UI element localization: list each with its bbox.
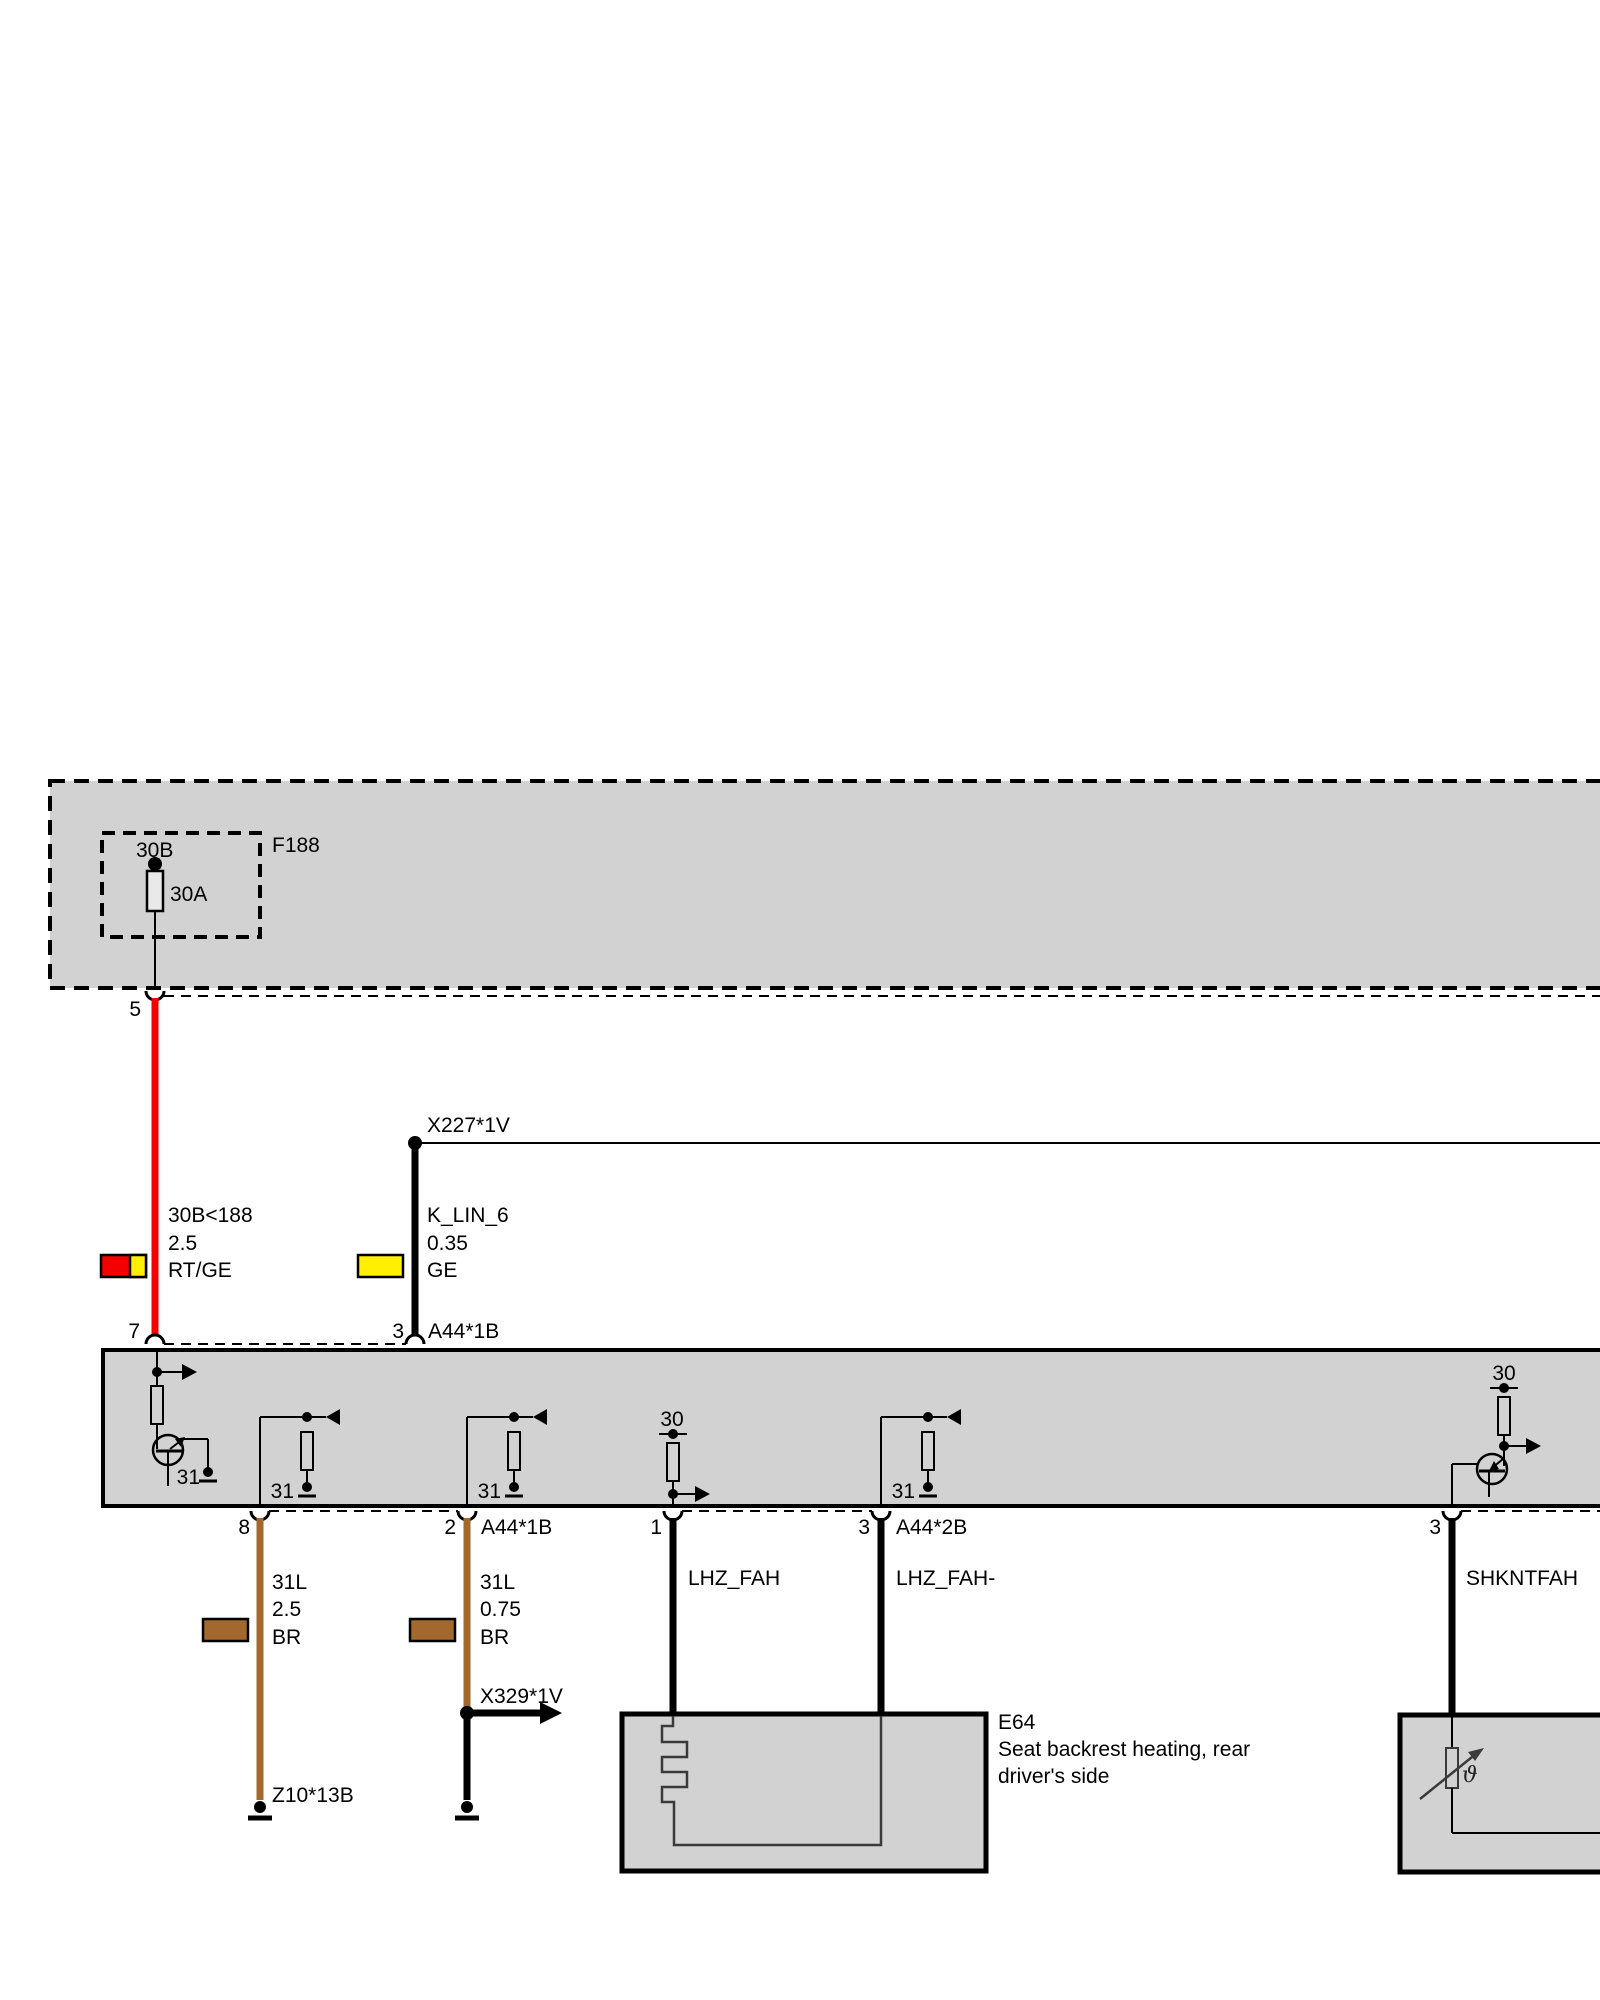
color-key-ge-icon <box>358 1255 403 1277</box>
x227-connector-label: X227*1V <box>427 1114 510 1137</box>
x329-label: X329*1V <box>480 1685 563 1708</box>
pin-3-top-label: 3 <box>392 1320 404 1343</box>
lhz-fah-label: LHZ_FAH <box>688 1567 780 1590</box>
gnd-light-gauge: 0.75 <box>480 1598 521 1621</box>
fuse-element <box>147 871 163 911</box>
pin-7-socket-icon <box>146 1335 164 1344</box>
wire-lhz-fah-minus: LHZ_FAH- <box>881 1518 995 1714</box>
pin-3b-label: 3 <box>1429 1516 1441 1539</box>
e64-heater-box: E64 Seat backrest heating, rear driver's… <box>622 1711 1250 1871</box>
wire-shkntfah: SHKNTFAH <box>1452 1518 1578 1715</box>
fuse-terminal-dot <box>148 857 162 871</box>
terminal-31-label: 31 <box>271 1480 294 1503</box>
color-key-yellow-part <box>130 1255 146 1277</box>
terminal-31-label: 31 <box>478 1480 501 1503</box>
a44-1b-bottom-label: A44*1B <box>481 1516 552 1539</box>
ground-point <box>455 1801 479 1818</box>
gnd-light-name: 31L <box>480 1571 515 1594</box>
color-key-br-icon <box>203 1619 248 1641</box>
wire-lhz-fah: LHZ_FAH <box>673 1518 780 1714</box>
ground-dot <box>461 1801 473 1813</box>
pin-2-label: 2 <box>444 1516 456 1539</box>
x329-node-dot <box>460 1706 474 1720</box>
gnd-heavy-gauge: 2.5 <box>272 1598 301 1621</box>
control-module-box: 7 3 A44*1B 31 <box>103 1320 1600 1539</box>
z10-label: Z10*13B <box>272 1784 354 1807</box>
wiring-diagram-page: F188 30B 30A 5 30B<188 2.5 RT/GE X227*1V… <box>0 0 1600 2000</box>
terminal-31-label: 31 <box>892 1480 915 1503</box>
shkntfah-label: SHKNTFAH <box>1466 1567 1578 1590</box>
supply-wire-gauge: 2.5 <box>168 1232 197 1255</box>
control-module-body <box>103 1350 1600 1506</box>
k-lin-wire-colorcode: GE <box>427 1259 457 1282</box>
junction-dot <box>509 1412 519 1422</box>
ground-dot <box>254 1801 266 1813</box>
a44-2b-label: A44*2B <box>896 1516 967 1539</box>
color-key-rt-ge-icon <box>101 1255 146 1277</box>
x227-node-dot <box>408 1136 422 1150</box>
pin-8-label: 8 <box>238 1516 250 1539</box>
k-lin-wire-gauge: 0.35 <box>427 1232 468 1255</box>
k-lin-wire-name: K_LIN_6 <box>427 1204 509 1227</box>
theta-symbol: ϑ <box>1462 1763 1478 1788</box>
pin-5-label: 5 <box>129 998 141 1021</box>
junction-dot <box>923 1412 933 1422</box>
terminal-31-label: 31 <box>177 1466 200 1489</box>
terminal-30-label: 30 <box>1492 1362 1515 1385</box>
module-bottom-pins: 8 2 A44*1B 1 3 A44*2B 3 <box>238 1511 1600 1539</box>
supply-wire-colorcode: RT/GE <box>168 1259 232 1282</box>
pin-3a-label: 3 <box>858 1516 870 1539</box>
gnd-heavy-colorcode: BR <box>272 1626 301 1649</box>
ground-point-z10 <box>248 1801 272 1818</box>
e64-name: E64 <box>998 1711 1036 1734</box>
gnd-heavy-name: 31L <box>272 1571 307 1594</box>
terminal-30-label: 30 <box>660 1408 683 1431</box>
e64-desc-line1: Seat backrest heating, rear <box>998 1738 1250 1761</box>
supply-wire-name: 30B<188 <box>168 1204 253 1227</box>
a44-1b-top-label: A44*1B <box>428 1320 499 1343</box>
sensor-body <box>1400 1715 1600 1872</box>
wire-31l-light: 31L 0.75 BR X329*1V <box>410 1518 563 1818</box>
gnd-light-colorcode: BR <box>480 1626 509 1649</box>
pin-3-top-socket-icon <box>406 1335 424 1344</box>
junction-dot <box>302 1412 312 1422</box>
fuse-carrier-body <box>50 781 1600 988</box>
wire-k-lin: X227*1V K_LIN_6 0.35 GE <box>358 1114 1600 1336</box>
wire-30b-supply: 30B<188 2.5 RT/GE <box>101 998 253 1336</box>
temp-sensor-box: ϑ <box>1400 1715 1600 1872</box>
fuse-box-name: F188 <box>272 834 320 857</box>
color-key-br-icon <box>410 1619 455 1641</box>
wiring-diagram: F188 30B 30A 5 30B<188 2.5 RT/GE X227*1V… <box>0 0 1600 2000</box>
pin-7-label: 7 <box>128 1320 140 1343</box>
fuse-carrier-box: F188 30B 30A <box>50 781 1600 988</box>
fuse-rating-label: 30A <box>170 883 207 906</box>
pin-1-label: 1 <box>650 1516 662 1539</box>
e64-body <box>622 1714 986 1871</box>
fuse-pin-5: 5 <box>129 991 1600 1021</box>
e64-desc-line2: driver's side <box>998 1765 1109 1788</box>
wire-31l-heavy: 31L 2.5 BR Z10*13B <box>203 1518 354 1818</box>
lhz-fah-minus-label: LHZ_FAH- <box>896 1567 995 1590</box>
